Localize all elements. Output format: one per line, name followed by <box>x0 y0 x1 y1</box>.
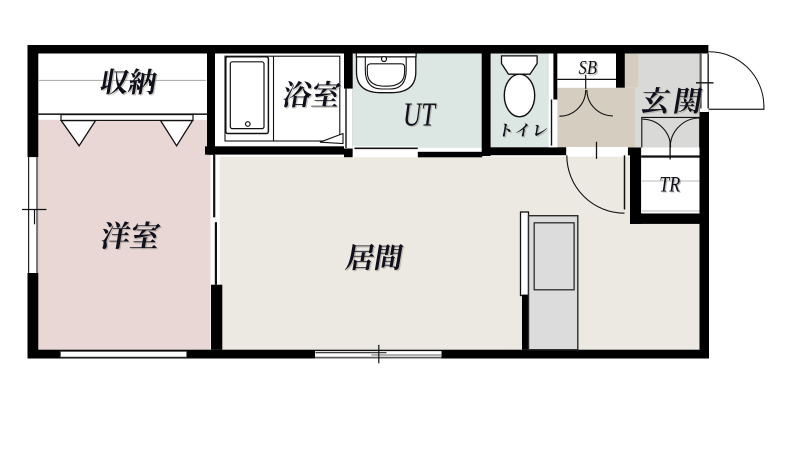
svg-text:UT: UT <box>403 97 437 134</box>
svg-text:TR: TR <box>659 171 680 196</box>
svg-text:SB: SB <box>579 58 598 79</box>
